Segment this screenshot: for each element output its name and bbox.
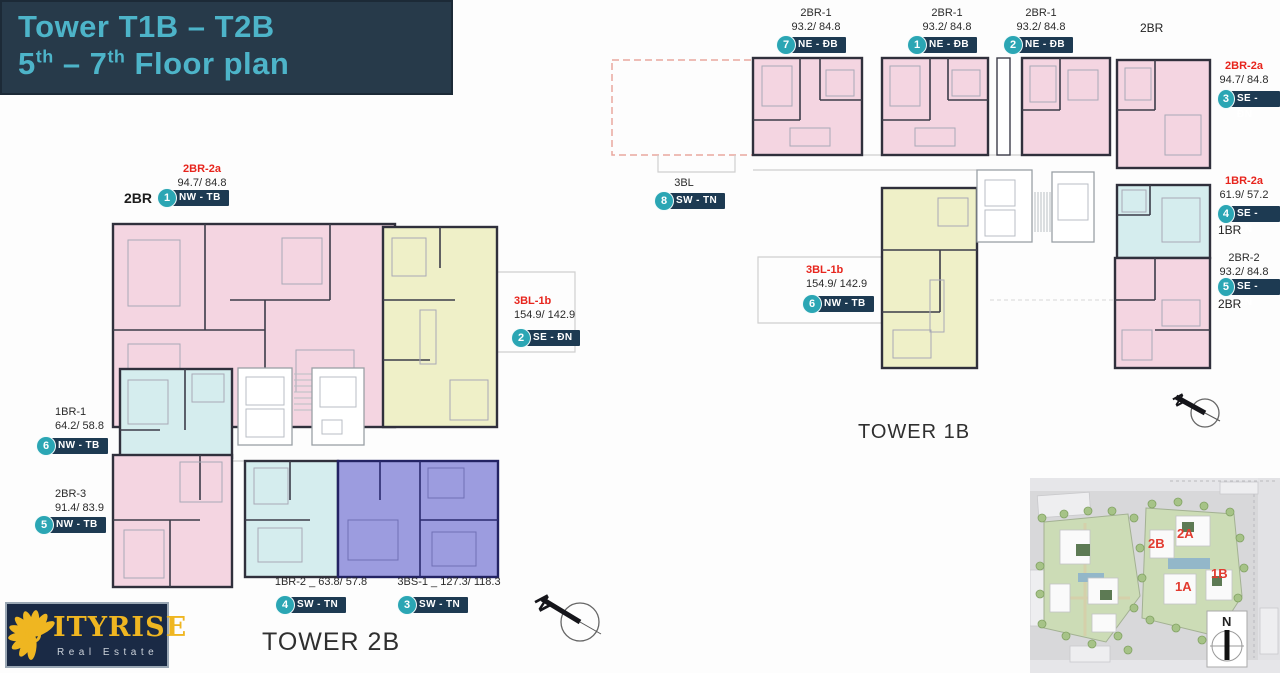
unit-area: 93.2/ 84.8 (903, 20, 991, 34)
unit-label-2br-2: 2BR-2 93.2/ 84.8 (1212, 251, 1276, 280)
badge-number: 5 (35, 516, 53, 534)
unit-code: 2BR-2a (160, 162, 244, 176)
unit-badge-7-t1b: 7 NE - ĐB (777, 36, 846, 54)
unit-code: 2BR-3 (55, 487, 145, 501)
badge-number: 4 (1218, 205, 1234, 223)
direction-pill: NW - TB (170, 190, 229, 206)
unit-badge-1-t2b: 2BR 1 NW - TB (124, 189, 229, 207)
unit-plan-2br-1-c (1022, 58, 1110, 155)
direction-pill: NE - ĐB (789, 37, 846, 53)
site-tower-1a-label: 1A (1175, 579, 1192, 594)
unit-area: 154.9/ 142.9 (514, 308, 604, 322)
unit-badge-2-t1b: 2 NE - ĐB (1004, 36, 1073, 54)
unit-label-3bl-1b-t2b: 3BL-1b 154.9/ 142.9 (514, 294, 604, 323)
unit-plan-2br-1-b (882, 58, 988, 155)
unit-label-1br-1: 1BR-1 64.2/ 58.8 (55, 405, 145, 434)
unit-badge-5-t2b: 5 NW - TB (35, 516, 106, 534)
tower-2b-plan (113, 224, 575, 587)
unit-label-2br-2a-t2b: 2BR-2a 94.7/ 84.8 (160, 162, 244, 191)
unit-badge-6-t1b: 6 NW - TB (803, 295, 874, 313)
unit-area: 91.4/ 83.9 (55, 501, 145, 515)
unit-code: 3BS-1 _ 127.3/ 118.3 (390, 575, 508, 589)
unit-badge-4-t1b: 4 SE - ĐN (1218, 205, 1280, 223)
unit-code: 3BL-1b (806, 263, 886, 277)
badge-number: 1 (158, 189, 176, 207)
unit-plan-2br-1-a (753, 58, 862, 155)
site-tower-2a-label: 2A (1177, 526, 1194, 541)
logo-tagline: Real Estate (57, 647, 158, 658)
unit-plan-1br-2a (1117, 185, 1210, 258)
unit-label-3bl: 3BL (662, 176, 706, 190)
cityrise-logo: ITYRISE Real Estate (5, 602, 169, 668)
badge-number: 7 (777, 36, 795, 54)
corner-unit-type: 2BR (1140, 21, 1163, 35)
tower-1b-title: TOWER 1B (858, 421, 970, 444)
unit-code: 2BR-1 (997, 6, 1085, 20)
logo-wordmark: ITYRISE (53, 612, 187, 643)
badge-number: 1 (908, 36, 926, 54)
unit-plan-2br-2a-t1b (1117, 60, 1210, 168)
direction-pill: NW - TB (815, 296, 874, 312)
unit-badge-5-t1b: 5 SE - ĐN (1218, 278, 1280, 296)
direction-pill: SE - ĐN (1228, 279, 1280, 295)
unit-code: 2BR-1 (903, 6, 991, 20)
unit-label-1br-2: 1BR-2 _ 63.8/ 57.8 (266, 575, 376, 589)
unit-badge-1-t1b: 1 NE - ĐB (908, 36, 977, 54)
unit-label-2br-1-b: 2BR-1 93.2/ 84.8 (903, 6, 991, 35)
direction-pill: NW - TB (49, 438, 108, 454)
page-title-line2: 5th – 7th Floor plan (18, 45, 451, 82)
unit-area: 94.7/ 84.8 (1212, 73, 1276, 87)
unit-label-3bs-1: 3BS-1 _ 127.3/ 118.3 (390, 575, 508, 589)
unit-badge-6-t2b: 6 NW - TB (37, 437, 108, 455)
elevator-core-t1b-east (1052, 172, 1094, 242)
direction-pill: SE - ĐN (1228, 91, 1280, 107)
badge-number: 3 (1218, 90, 1234, 108)
unit-badge-4-t2b: 4 SW - TN (276, 596, 346, 614)
unit-plan-3bl-1b-t2b (383, 227, 497, 427)
title-banner: Tower T1B – T2B 5th – 7th Floor plan (0, 0, 453, 95)
unit-code: 3BL-1b (514, 294, 604, 308)
elevator-core-t2b-east (312, 368, 364, 445)
unit-plan-3bs-1 (338, 461, 498, 577)
badge-number: 5 (1218, 278, 1234, 296)
unit-badge-2-t2b: 2 SE - ĐN (512, 329, 580, 347)
unit-code: 1BR-2a (1212, 174, 1276, 188)
direction-pill: SE - ĐN (524, 330, 580, 346)
direction-pill: NE - ĐB (1016, 37, 1073, 53)
site-map: 2B 2A 1B 1A N (1030, 478, 1280, 673)
unit-area: 93.2/ 84.8 (997, 20, 1085, 34)
unit-label-2br-1-c: 2BR-1 93.2/ 84.8 (997, 6, 1085, 35)
unit-code: 1BR-2 _ 63.8/ 57.8 (266, 575, 376, 589)
north-arrow-t2b-icon: N (529, 591, 601, 641)
direction-pill: SW - TN (667, 193, 725, 209)
balcony-gap (997, 58, 1010, 155)
unit-plan-1br-2 (245, 461, 338, 577)
unit-badge-3-t1b: 3 SE - ĐN (1218, 90, 1280, 108)
badge-number: 4 (276, 596, 294, 614)
unit-code: 1BR-1 (55, 405, 145, 419)
unit-area: 61.9/ 57.2 (1212, 188, 1276, 202)
unit-plan-3bl-1b-t1b (882, 188, 977, 368)
badge-number: 2 (512, 329, 530, 347)
direction-pill: SW - TN (410, 597, 468, 613)
site-tower-2b-label: 2B (1148, 536, 1165, 551)
unit-plan-2br-3 (113, 455, 232, 587)
north-letter: N (1168, 391, 1188, 409)
tower-2b-title: TOWER 2B (262, 628, 400, 657)
direction-pill: NW - TB (47, 517, 106, 533)
unit-code: 2BR-1 (772, 6, 860, 20)
stairs-t1b (1035, 192, 1050, 232)
floor-plan-page: N N Tower T1B – T2B 5th – 7th Floor plan… (0, 0, 1280, 673)
north-arrow-t1b-icon: N (1168, 391, 1220, 427)
unit-area: 64.2/ 58.8 (55, 419, 145, 433)
tower-1b-plan (612, 58, 1210, 368)
badge-number: 3 (398, 596, 416, 614)
unit-badge-3-t2b: 3 SW - TN (398, 596, 468, 614)
unit-code: 2BR-2a (1212, 59, 1276, 73)
direction-pill: NE - ĐB (920, 37, 977, 53)
unit-outline-3bl (612, 60, 753, 155)
north-letter: N (529, 591, 556, 615)
elevator-core-t2b-west (238, 368, 292, 445)
badge-number: 2 (1004, 36, 1022, 54)
direction-pill: SE - ĐN (1228, 206, 1280, 222)
compass-north-letter: N (1222, 614, 1231, 629)
elevator-core-t1b-west (977, 170, 1032, 242)
unit-label-2br-1-a: 2BR-1 93.2/ 84.8 (772, 6, 860, 35)
unit-code: 3BL (662, 176, 706, 190)
unit-area: 154.9/ 142.9 (806, 277, 886, 291)
unit-code: 2BR-2 (1212, 251, 1276, 265)
badge-number: 8 (655, 192, 673, 210)
unit-label-2br-2a-t1b: 2BR-2a 94.7/ 84.8 (1212, 59, 1276, 88)
unit-area: 93.2/ 84.8 (772, 20, 860, 34)
unit-type-suffix: 2BR (1218, 297, 1241, 311)
unit-plan-2br-2 (1115, 258, 1210, 368)
unit-badge-8-t1b: 8 SW - TN (655, 192, 725, 210)
unit-label-1br-2a: 1BR-2a 61.9/ 57.2 (1212, 174, 1276, 203)
unit-type-suffix: 1BR (1218, 223, 1241, 237)
badge-number: 6 (37, 437, 55, 455)
page-title-line1: Tower T1B – T2B (18, 8, 451, 45)
unit-label-2br-3: 2BR-3 91.4/ 83.9 (55, 487, 145, 516)
site-tower-1b-label: 1B (1211, 566, 1228, 581)
unit-type-prefix: 2BR (124, 190, 152, 206)
direction-pill: SW - TN (288, 597, 346, 613)
unit-label-3bl-1b-t1b: 3BL-1b 154.9/ 142.9 (806, 263, 886, 292)
compass-icon: N (1207, 611, 1247, 667)
badge-number: 6 (803, 295, 821, 313)
